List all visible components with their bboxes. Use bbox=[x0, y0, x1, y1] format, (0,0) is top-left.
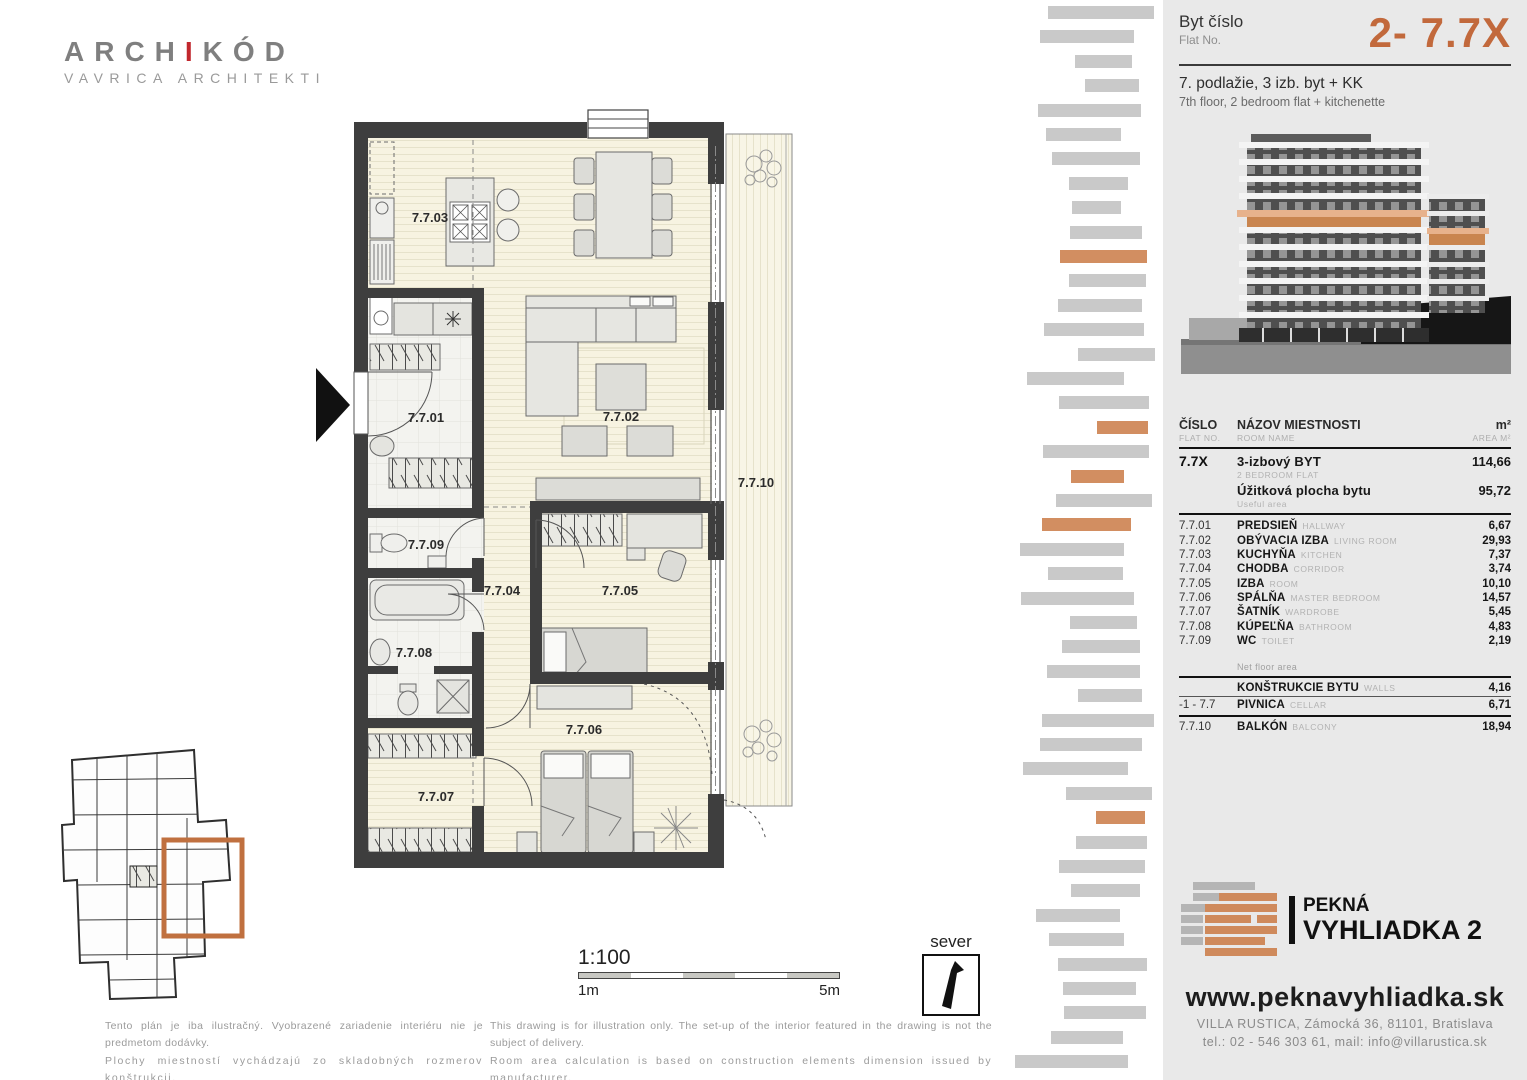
building-render bbox=[1181, 128, 1511, 386]
label-7701: 7.7.01 bbox=[408, 410, 444, 425]
facade-bar bbox=[1063, 982, 1136, 995]
north-arrow-icon bbox=[924, 956, 978, 1014]
tower-floors bbox=[1237, 142, 1431, 328]
facade-bar bbox=[1064, 1006, 1146, 1019]
facade-bar bbox=[1048, 567, 1122, 580]
facade-bar bbox=[1058, 299, 1142, 312]
facade-bar bbox=[1075, 55, 1131, 68]
facade-bar bbox=[1036, 909, 1121, 922]
north-box bbox=[922, 954, 980, 1016]
summary-name: 3-izbový BYT bbox=[1237, 454, 1449, 469]
table-header: ČÍSLOFLAT NO. NÁZOV MIESTNOSTIROOM NAME … bbox=[1179, 418, 1511, 443]
facade-bar bbox=[1070, 616, 1137, 629]
facade-bar bbox=[1072, 201, 1122, 214]
facade-bar bbox=[1059, 396, 1149, 409]
facade-bar bbox=[1048, 6, 1153, 19]
facade-bar bbox=[1020, 543, 1124, 556]
facade-bar bbox=[1049, 933, 1124, 946]
facade-bar bbox=[1066, 787, 1152, 800]
project-logo-icon bbox=[1179, 880, 1283, 960]
facade-bar bbox=[1023, 762, 1128, 775]
logo-part2: KÓD bbox=[203, 36, 295, 67]
summary-number: 7.7X bbox=[1179, 453, 1237, 469]
key-plan bbox=[52, 730, 252, 1005]
logo-part1: ARCH bbox=[64, 36, 185, 67]
disclaimer-en-line1: This drawing is for illustration only. T… bbox=[490, 1018, 992, 1053]
table-row: 7.7.06SPÁLŇAMASTER BEDROOM14,57 bbox=[1179, 591, 1511, 605]
facade-bar bbox=[1040, 738, 1142, 751]
logo-vertical-bar bbox=[1289, 896, 1295, 944]
facade-bar bbox=[1042, 518, 1131, 531]
project-logo: PEKNÁ VYHLIADKA 2 bbox=[1179, 880, 1511, 960]
col-name-sk: NÁZOV MIESTNOSTI bbox=[1237, 418, 1449, 432]
scale-bar-graphic bbox=[578, 972, 840, 979]
useful-label-en: Useful area bbox=[1237, 499, 1511, 509]
area-table: ČÍSLOFLAT NO. NÁZOV MIESTNOSTIROOM NAME … bbox=[1179, 418, 1511, 733]
project-website: www.peknavyhliadka.sk bbox=[1163, 982, 1527, 1013]
useful-area: 95,72 bbox=[1449, 483, 1511, 498]
scale-label: 1:100 bbox=[578, 946, 840, 970]
label-7710: 7.7.10 bbox=[738, 475, 774, 490]
col-number-sk: ČÍSLO bbox=[1179, 418, 1237, 432]
north-indicator: sever bbox=[922, 932, 980, 1016]
table-row: 7.7.03KUCHYŇAKITCHEN7,37 bbox=[1179, 548, 1511, 562]
label-7707: 7.7.07 bbox=[418, 789, 454, 804]
disclaimer-en: This drawing is for illustration only. T… bbox=[490, 1018, 992, 1080]
facade-bar bbox=[1069, 177, 1127, 190]
col-area-sk: m² bbox=[1449, 418, 1511, 432]
disclaimer-en-line2: Room area calculation is based on constr… bbox=[490, 1053, 992, 1080]
facade-bar bbox=[1070, 226, 1142, 239]
facade-bar bbox=[1071, 470, 1123, 483]
facade-bar bbox=[1021, 592, 1134, 605]
facade-bar bbox=[1078, 689, 1141, 702]
entrance-arrow bbox=[316, 368, 350, 442]
summary-row: 7.7X 3-izbový BYT 114,66 bbox=[1179, 453, 1511, 469]
facade-bar bbox=[1085, 79, 1139, 92]
facade-bar bbox=[1047, 665, 1140, 678]
facade-bars-strip bbox=[1026, 0, 1166, 1080]
facade-bar bbox=[1056, 494, 1152, 507]
flat-desc-sk: 7. podlažie, 3 izb. byt + KK bbox=[1179, 75, 1511, 93]
table-row-cellar: -1 - 7.7PIVNICACELLAR6,71 bbox=[1179, 699, 1511, 711]
facade-bar bbox=[1078, 348, 1155, 361]
drawing-sheet: ARCHIKÓD VAVRICA ARCHITEKTI bbox=[0, 0, 1527, 1080]
useful-label: Úžitková plocha bytu bbox=[1237, 483, 1449, 498]
flat-header: Byt číslo Flat No. 2- 7.7X 7. podlažie, … bbox=[1179, 12, 1511, 109]
room-rows: 7.7.01PREDSIEŇHALLWAY6,67 7.7.02OBÝVACIA… bbox=[1179, 519, 1511, 648]
architect-logo: ARCHIKÓD VAVRICA ARCHITEKTI bbox=[64, 36, 326, 86]
facade-bar bbox=[1052, 152, 1141, 165]
net-floor-area-label: Net floor area bbox=[1237, 662, 1511, 672]
facade-bar bbox=[1042, 714, 1154, 727]
annex-floors bbox=[1427, 194, 1489, 313]
facade-bar bbox=[1059, 860, 1145, 873]
table-row-balcony: 7.7.10BALKÓNBALCONY18,94 bbox=[1179, 721, 1511, 733]
facade-bar bbox=[1071, 884, 1141, 897]
facade-bar bbox=[1096, 811, 1145, 824]
facade-bar bbox=[1097, 421, 1148, 434]
facade-bar bbox=[1038, 104, 1141, 117]
facade-bar bbox=[1069, 274, 1146, 287]
info-panel: Byt číslo Flat No. 2- 7.7X 7. podlažie, … bbox=[1163, 0, 1527, 1080]
table-row: 7.7.02OBÝVACIA IZBALIVING ROOM29,93 bbox=[1179, 533, 1511, 547]
scale-bar: 1:100 1m 5m bbox=[578, 946, 840, 999]
facade-bar bbox=[1051, 1031, 1123, 1044]
table-row: 7.7.05IZBAROOM10,10 bbox=[1179, 577, 1511, 591]
disclaimer-sk-line2: Plochy miestností vychádzajú zo skladobn… bbox=[105, 1053, 483, 1080]
facade-bar bbox=[1027, 372, 1123, 385]
logo-accent-letter: I bbox=[185, 36, 203, 67]
table-row: 7.7.04CHODBACORRIDOR3,74 bbox=[1179, 562, 1511, 576]
label-7708: 7.7.08 bbox=[396, 645, 432, 660]
table-row: 7.7.08KÚPEĽŇABATHROOM4,83 bbox=[1179, 620, 1511, 634]
disclaimer-sk: Tento plán je iba ilustračný. Vyobrazené… bbox=[105, 1018, 483, 1080]
label-7702: 7.7.02 bbox=[603, 409, 639, 424]
highlight-floor bbox=[1237, 210, 1431, 227]
summary-name-en: 2 BEDROOM FLAT bbox=[1237, 470, 1511, 480]
label-7704: 7.7.04 bbox=[484, 583, 521, 598]
facade-bar bbox=[1043, 445, 1149, 458]
floor-plan: 7.7.01 7.7.02 7.7.03 7.7.04 7.7.05 7.7.0… bbox=[312, 106, 826, 900]
architect-subtitle: VAVRICA ARCHITEKTI bbox=[64, 70, 326, 86]
table-row-walls: KONŠTRUKCIE BYTUWALLS4,16 bbox=[1179, 682, 1511, 694]
col-number-en: FLAT NO. bbox=[1179, 433, 1237, 443]
scale-start: 1m bbox=[578, 982, 599, 999]
facade-bar bbox=[1060, 250, 1147, 263]
summary-area: 114,66 bbox=[1449, 454, 1511, 469]
col-name-en: ROOM NAME bbox=[1237, 433, 1449, 443]
flat-label-sk: Byt číslo bbox=[1179, 12, 1243, 32]
useful-area-row: Úžitková plocha bytu 95,72 bbox=[1179, 483, 1511, 498]
facade-bar bbox=[1044, 323, 1144, 336]
project-name-line2: VYHLIADKA 2 bbox=[1303, 916, 1482, 944]
label-7709: 7.7.09 bbox=[408, 537, 444, 552]
flat-desc-en: 7th floor, 2 bedroom flat + kitchenette bbox=[1179, 95, 1511, 109]
balcony-door-top bbox=[588, 110, 648, 138]
facade-bar bbox=[1046, 128, 1121, 141]
dining-set bbox=[574, 152, 672, 258]
disclaimer-sk-line1: Tento plán je iba ilustračný. Vyobrazené… bbox=[105, 1018, 483, 1053]
table-row: 7.7.09WCTOILET2,19 bbox=[1179, 634, 1511, 648]
facade-bar bbox=[1015, 1055, 1128, 1068]
facade-bar bbox=[1040, 30, 1135, 43]
facade-bar bbox=[1058, 958, 1147, 971]
label-7706: 7.7.06 bbox=[566, 722, 602, 737]
contact-line: tel.: 02 - 546 303 61, mail: info@villar… bbox=[1163, 1034, 1527, 1052]
annex-highlight bbox=[1427, 228, 1489, 245]
flat-number: 2- 7.7X bbox=[1369, 12, 1511, 54]
table-row: 7.7.01PREDSIEŇHALLWAY6,67 bbox=[1179, 519, 1511, 533]
north-label: sever bbox=[922, 932, 980, 952]
address-line: VILLA RUSTICA, Zámocká 36, 81101, Bratis… bbox=[1163, 1016, 1527, 1034]
scale-end: 5m bbox=[819, 982, 840, 999]
project-address: VILLA RUSTICA, Zámocká 36, 81101, Bratis… bbox=[1163, 1016, 1527, 1051]
flat-label-en: Flat No. bbox=[1179, 33, 1243, 47]
col-area-en: AREA M² bbox=[1449, 433, 1511, 443]
table-row: 7.7.07ŠATNÍKWARDROBE5,45 bbox=[1179, 605, 1511, 619]
balcony-windows bbox=[711, 146, 720, 794]
architect-name: ARCHIKÓD bbox=[64, 36, 326, 68]
facade-bar bbox=[1076, 836, 1147, 849]
project-name-line1: PEKNÁ bbox=[1303, 896, 1482, 916]
header-divider bbox=[1179, 64, 1511, 66]
facade-bar bbox=[1062, 640, 1141, 653]
label-7705: 7.7.05 bbox=[602, 583, 638, 598]
label-7703: 7.7.03 bbox=[412, 210, 448, 225]
